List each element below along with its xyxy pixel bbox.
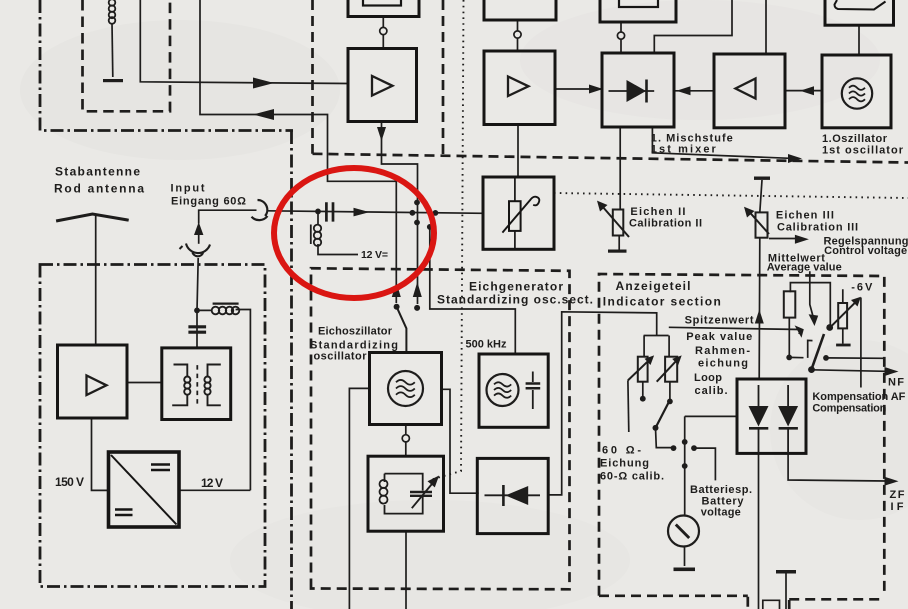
svg-text:Anzeigeteil: Anzeigeteil (616, 279, 691, 293)
svg-text:-6V: -6V (851, 282, 873, 294)
svg-text:Kompensation AF: Kompensation AF (812, 391, 905, 403)
svg-text:Standardizing osc.sect.: Standardizing osc.sect. (437, 293, 593, 307)
svg-text:150 V: 150 V (55, 475, 84, 489)
svg-text:Indicator section: Indicator section (603, 295, 721, 309)
svg-text:1.Oszillator: 1.Oszillator (822, 133, 888, 145)
svg-text:oscillator: oscillator (314, 351, 368, 363)
svg-text:Peak value: Peak value (686, 331, 752, 343)
svg-text:Average value: Average value (767, 261, 842, 273)
svg-text:Calibration III: Calibration III (777, 222, 858, 234)
svg-text:ZF: ZF (890, 489, 905, 501)
svg-text:60-Ω calib.: 60-Ω calib. (600, 471, 664, 483)
svg-text:Calibration II: Calibration II (629, 218, 702, 230)
svg-text:Eichgenerator: Eichgenerator (469, 280, 563, 294)
svg-text:Eichung: Eichung (600, 458, 649, 470)
svg-text:IF: IF (891, 501, 904, 513)
svg-text:Control voltage: Control voltage (824, 245, 907, 257)
svg-text:Spitzenwert: Spitzenwert (685, 315, 754, 327)
svg-text:voltage: voltage (701, 507, 741, 519)
svg-text:Batteriesp.: Batteriesp. (690, 484, 752, 496)
svg-text:calib.: calib. (695, 385, 728, 397)
svg-text:12 V: 12 V (201, 476, 223, 490)
svg-text:eichung: eichung (698, 358, 748, 370)
svg-text:Eichen III: Eichen III (776, 210, 834, 222)
svg-text:Rahmen-: Rahmen- (695, 345, 750, 357)
svg-text:Rod antenna: Rod antenna (54, 182, 144, 196)
svg-text:500 kHz: 500 kHz (466, 339, 508, 351)
svg-text:1st mixer: 1st mixer (651, 144, 717, 156)
svg-text:Eingang 60Ω: Eingang 60Ω (171, 196, 246, 208)
svg-text:Loop: Loop (694, 372, 722, 384)
svg-text:1st oscillator: 1st oscillator (822, 145, 904, 157)
svg-text:Compensation: Compensation (812, 403, 886, 415)
svg-text:Stabantenne: Stabantenne (55, 165, 140, 179)
svg-text:12 V=: 12 V= (361, 249, 388, 261)
svg-text:Eichoszillator: Eichoszillator (318, 326, 393, 338)
svg-text:Eichen II: Eichen II (630, 206, 685, 218)
